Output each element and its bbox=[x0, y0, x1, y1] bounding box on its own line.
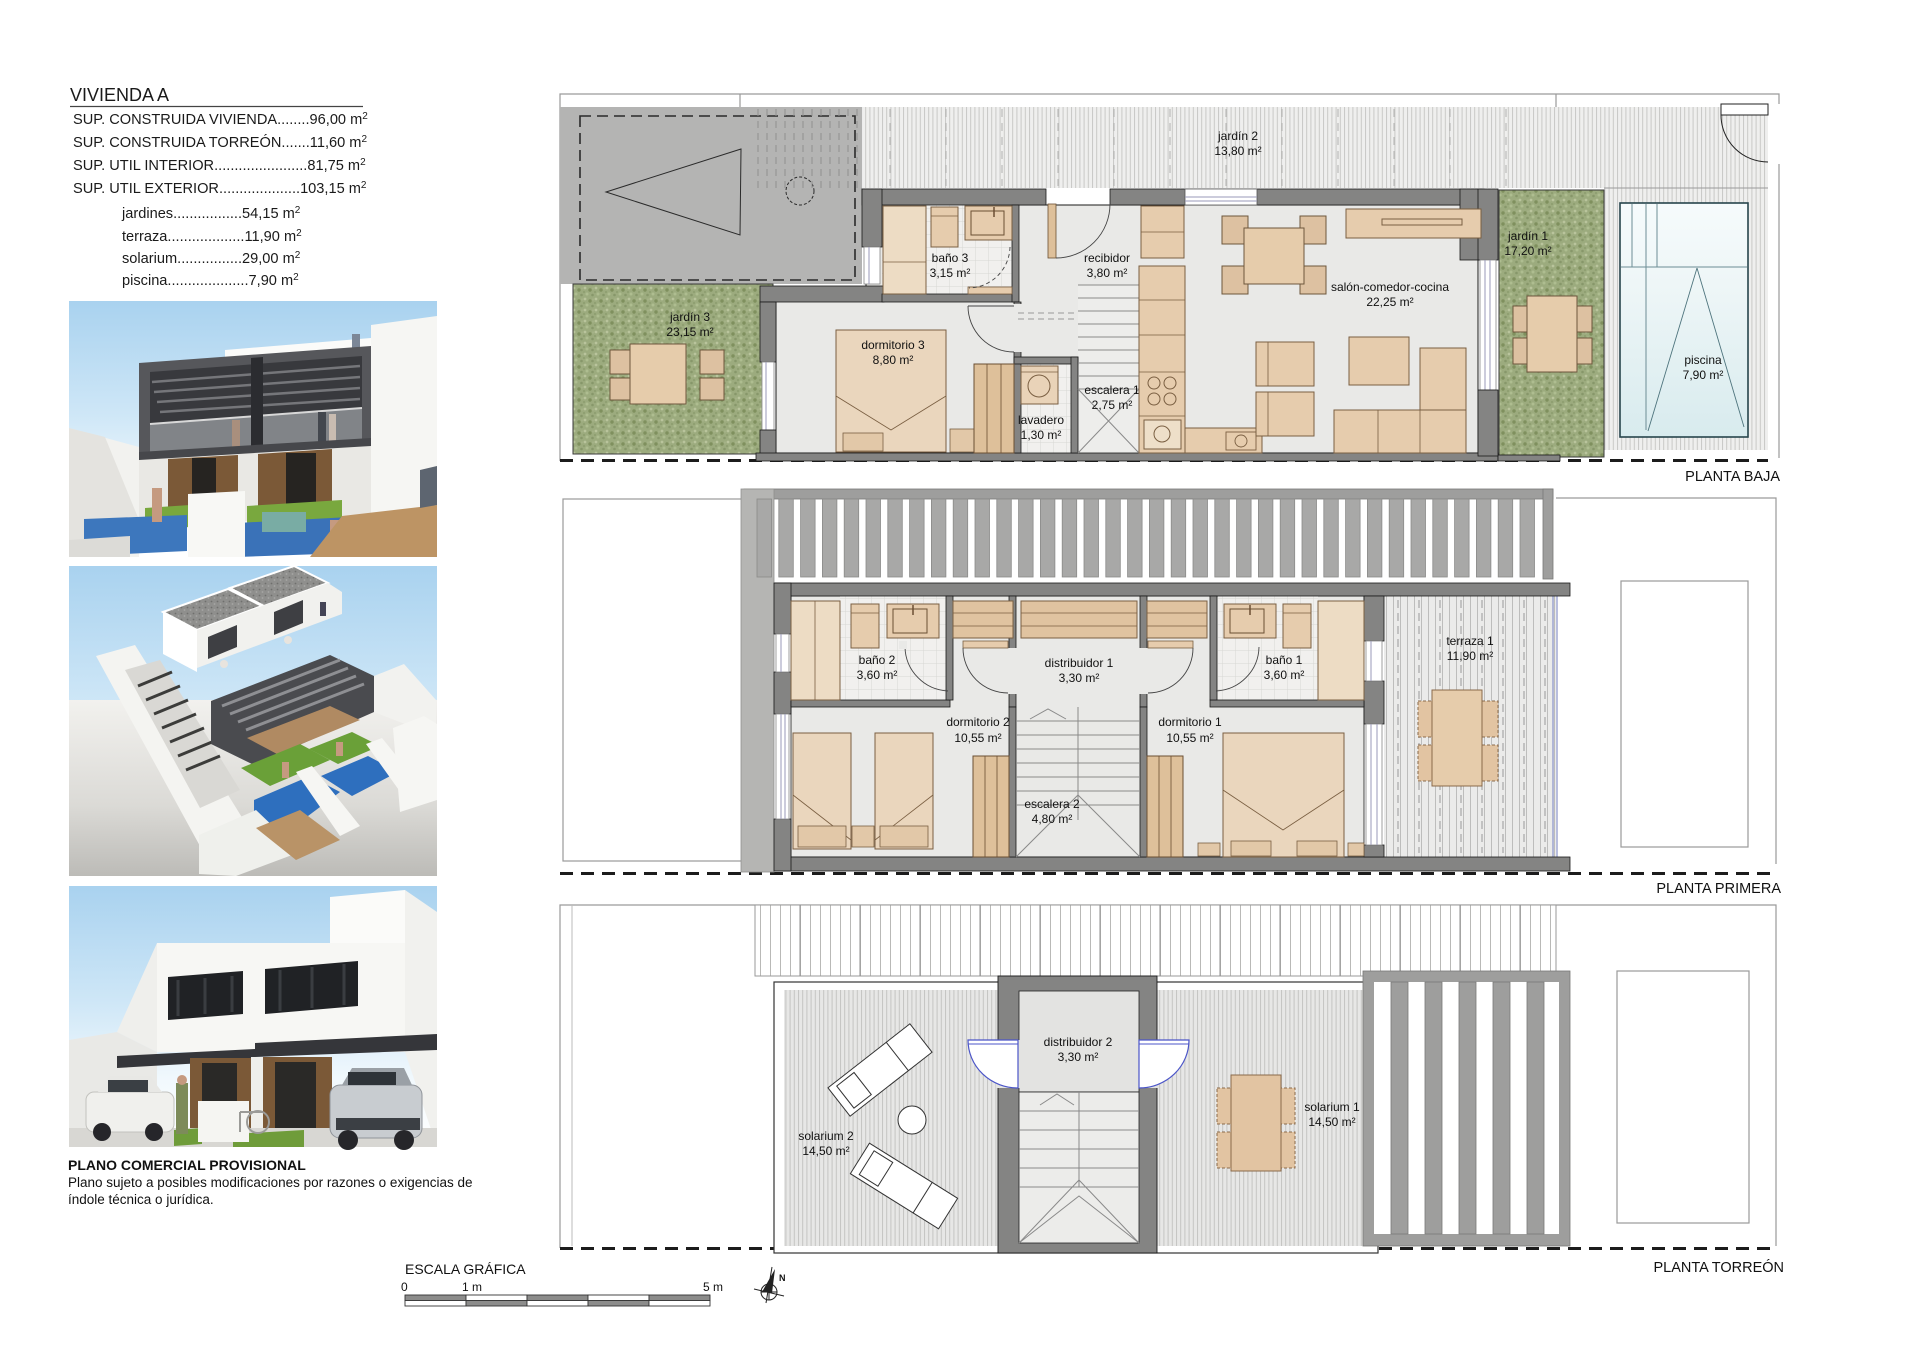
svg-text:dormitorio 1: dormitorio 1 bbox=[1158, 715, 1222, 729]
svg-text:SUP. UTIL INTERIOR............: SUP. UTIL INTERIOR......................… bbox=[73, 157, 366, 174]
svg-text:7,90 m²: 7,90 m² bbox=[1683, 368, 1724, 382]
svg-text:piscina....................7,9: piscina....................7,90 m2 bbox=[122, 272, 299, 289]
svg-text:dormitorio 2: dormitorio 2 bbox=[946, 715, 1010, 729]
svg-text:1 m: 1 m bbox=[462, 1280, 482, 1294]
svg-text:17,20 m²: 17,20 m² bbox=[1504, 244, 1551, 258]
svg-text:5 m: 5 m bbox=[703, 1280, 723, 1294]
svg-text:escalera 1: escalera 1 bbox=[1084, 383, 1140, 397]
svg-text:SUP. UTIL EXTERIOR............: SUP. UTIL EXTERIOR....................10… bbox=[73, 180, 367, 197]
svg-text:14,50 m²: 14,50 m² bbox=[1308, 1115, 1355, 1129]
svg-text:1,30 m²: 1,30 m² bbox=[1021, 428, 1062, 442]
svg-text:distribuidor 1: distribuidor 1 bbox=[1045, 656, 1114, 670]
svg-text:jardines.................54,15: jardines.................54,15 m2 bbox=[121, 205, 301, 222]
svg-text:10,55 m²: 10,55 m² bbox=[954, 731, 1001, 745]
svg-text:10,55 m²: 10,55 m² bbox=[1166, 731, 1213, 745]
svg-text:3,80 m²: 3,80 m² bbox=[1087, 266, 1128, 280]
svg-text:baño 3: baño 3 bbox=[932, 251, 969, 265]
svg-text:PLANTA PRIMERA: PLANTA PRIMERA bbox=[1656, 881, 1781, 897]
svg-text:recibidor: recibidor bbox=[1084, 251, 1130, 265]
svg-text:PLANTA BAJA: PLANTA BAJA bbox=[1685, 469, 1780, 485]
svg-text:solarium................29,00: solarium................29,00 m2 bbox=[122, 250, 301, 267]
svg-text:8,80 m²: 8,80 m² bbox=[873, 353, 914, 367]
svg-text:baño 2: baño 2 bbox=[859, 653, 896, 667]
svg-text:14,50 m²: 14,50 m² bbox=[802, 1144, 849, 1158]
svg-text:N: N bbox=[779, 1273, 786, 1283]
svg-text:salón-comedor-cocina: salón-comedor-cocina bbox=[1331, 280, 1449, 294]
svg-text:PLANTA TORREÓN: PLANTA TORREÓN bbox=[1653, 1259, 1784, 1276]
svg-text:4,80 m²: 4,80 m² bbox=[1032, 812, 1073, 826]
svg-text:PLANO COMERCIAL PROVISIONAL: PLANO COMERCIAL PROVISIONAL bbox=[68, 1157, 306, 1173]
svg-text:jardín 1: jardín 1 bbox=[1507, 229, 1548, 243]
svg-text:distribuidor 2: distribuidor 2 bbox=[1044, 1035, 1113, 1049]
svg-text:2,75 m²: 2,75 m² bbox=[1092, 398, 1133, 412]
svg-text:solarium 2: solarium 2 bbox=[798, 1129, 854, 1143]
svg-text:piscina: piscina bbox=[1684, 353, 1722, 367]
svg-text:13,80 m²: 13,80 m² bbox=[1214, 144, 1261, 158]
svg-text:lavadero: lavadero bbox=[1018, 413, 1064, 427]
svg-text:23,15 m²: 23,15 m² bbox=[666, 325, 713, 339]
svg-text:Plano sujeto a posibles modifi: Plano sujeto a posibles modificaciones p… bbox=[68, 1175, 473, 1190]
svg-text:VIVIENDA A: VIVIENDA A bbox=[70, 85, 169, 105]
svg-text:escalera 2: escalera 2 bbox=[1024, 797, 1080, 811]
svg-text:índole técnica o jurídica.: índole técnica o jurídica. bbox=[68, 1192, 214, 1207]
svg-text:SUP. CONSTRUIDA TORREÓN.......: SUP. CONSTRUIDA TORREÓN.......11,60 m2 bbox=[73, 134, 367, 151]
svg-text:3,30 m²: 3,30 m² bbox=[1058, 1050, 1099, 1064]
svg-text:terraza 1: terraza 1 bbox=[1446, 634, 1494, 648]
svg-text:3,30 m²: 3,30 m² bbox=[1059, 671, 1100, 685]
svg-text:ESCALA GRÁFICA: ESCALA GRÁFICA bbox=[405, 1261, 526, 1277]
svg-text:terraza...................11,9: terraza...................11,90 m2 bbox=[122, 228, 302, 245]
svg-text:solarium 1: solarium 1 bbox=[1304, 1100, 1360, 1114]
svg-text:3,60 m²: 3,60 m² bbox=[857, 668, 898, 682]
svg-text:22,25 m²: 22,25 m² bbox=[1366, 295, 1413, 309]
svg-text:3,15 m²: 3,15 m² bbox=[930, 266, 971, 280]
svg-text:dormitorio 3: dormitorio 3 bbox=[861, 338, 925, 352]
svg-text:3,60 m²: 3,60 m² bbox=[1264, 668, 1305, 682]
svg-text:0: 0 bbox=[401, 1280, 408, 1294]
svg-text:jardín 3: jardín 3 bbox=[669, 310, 710, 324]
svg-text:SUP. CONSTRUIDA VIVIENDA......: SUP. CONSTRUIDA VIVIENDA........96,00 m2 bbox=[73, 111, 368, 128]
svg-text:jardín 2: jardín 2 bbox=[1217, 129, 1258, 143]
svg-text:11,90 m²: 11,90 m² bbox=[1447, 649, 1493, 663]
svg-text:baño 1: baño 1 bbox=[1266, 653, 1303, 667]
